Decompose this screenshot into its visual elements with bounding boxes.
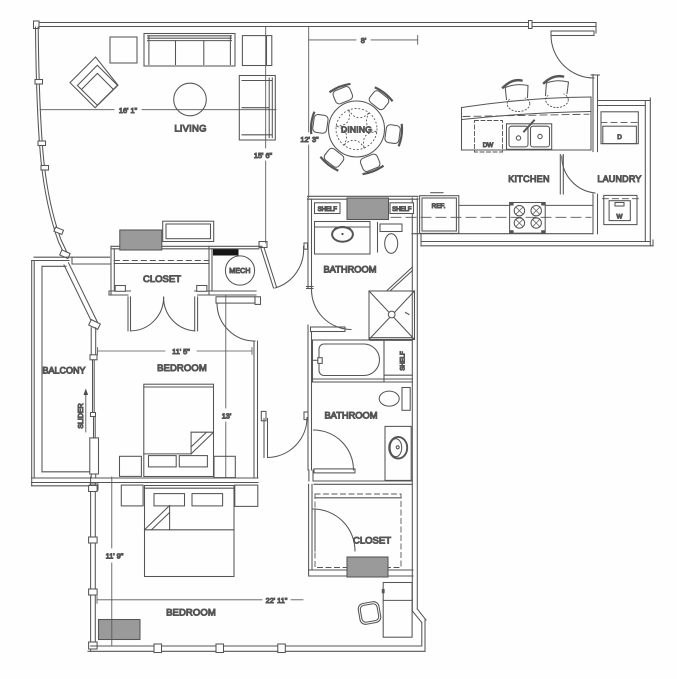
svg-text:16' 1": 16' 1" [119, 106, 138, 115]
svg-text:11' 5": 11' 5" [172, 347, 190, 356]
svg-text:REF.: REF. [432, 203, 446, 210]
svg-text:DW: DW [483, 142, 494, 149]
svg-text:MECH: MECH [229, 268, 250, 275]
svg-text:BALCONY: BALCONY [42, 366, 85, 376]
svg-text:SLIDER: SLIDER [78, 403, 85, 428]
svg-text:15' 6": 15' 6" [254, 151, 273, 160]
svg-text:13': 13' [222, 412, 232, 421]
svg-text:12' 3": 12' 3" [300, 135, 319, 144]
svg-text:DINING: DINING [341, 124, 372, 134]
svg-text:BATHROOM: BATHROOM [324, 411, 377, 421]
svg-text:BATHROOM: BATHROOM [323, 265, 376, 275]
svg-text:CLOSET: CLOSET [143, 274, 181, 285]
svg-text:11' 9": 11' 9" [106, 552, 124, 561]
svg-text:BEDROOM: BEDROOM [157, 363, 207, 374]
svg-text:22' 11": 22' 11" [266, 596, 288, 605]
svg-text:SHELF: SHELF [401, 351, 407, 371]
svg-text:BEDROOM: BEDROOM [166, 608, 216, 619]
svg-text:SHELF: SHELF [318, 207, 338, 213]
svg-text:W: W [617, 214, 623, 221]
svg-text:LAUNDRY: LAUNDRY [597, 174, 641, 184]
svg-text:LIVING: LIVING [174, 124, 206, 135]
svg-text:8': 8' [361, 36, 367, 45]
svg-text:D: D [617, 134, 622, 141]
svg-text:CLOSET: CLOSET [353, 536, 391, 547]
svg-text:SHELF: SHELF [392, 207, 412, 213]
svg-text:KITCHEN: KITCHEN [508, 174, 550, 184]
